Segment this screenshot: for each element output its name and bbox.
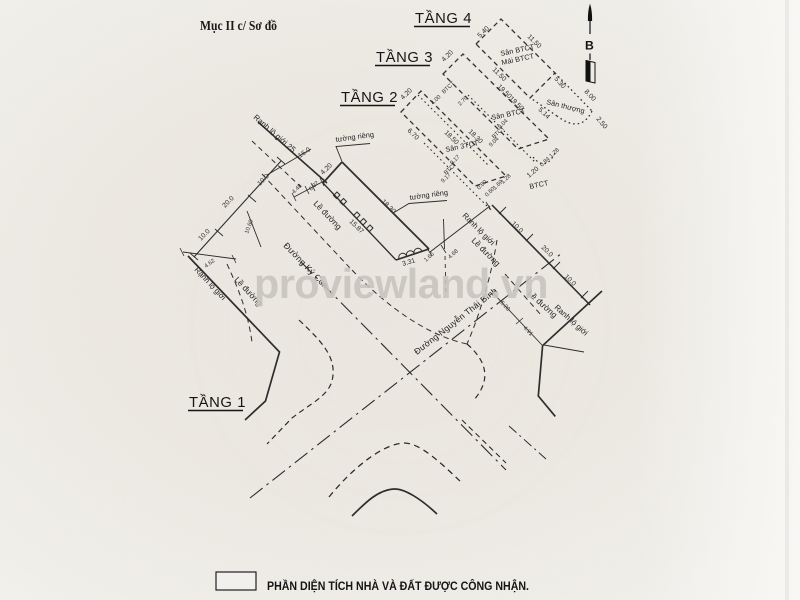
- svg-text:TẦNG 1: TẦNG 1: [189, 394, 246, 411]
- svg-text:TẦNG 2: TẦNG 2: [341, 89, 398, 106]
- svg-text:TẦNG 3: TẦNG 3: [376, 49, 433, 66]
- svg-text:PHẦN DIỆN TÍCH NHÀ VÀ ĐẤT ĐƯỢC: PHẦN DIỆN TÍCH NHÀ VÀ ĐẤT ĐƯỢC CÔNG NHẬN…: [267, 578, 529, 593]
- svg-text:B: B: [585, 39, 594, 53]
- svg-text:proviewland.vn: proviewland.vn: [254, 260, 548, 307]
- svg-text:Mục II c/ Sơ đồ: Mục II c/ Sơ đồ: [200, 18, 277, 33]
- svg-text:TẦNG 4: TẦNG 4: [415, 10, 472, 27]
